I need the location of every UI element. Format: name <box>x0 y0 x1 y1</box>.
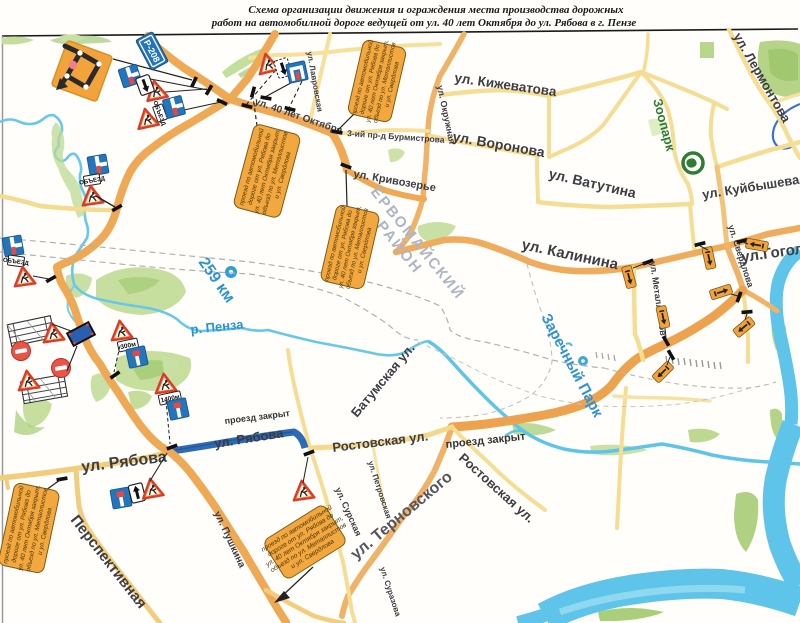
svg-text:работ на автомобилной дороге: работ на автомобилной дороге ведущей от … <box>211 17 637 29</box>
svg-text:Схема организации движения и о: Схема организации движения и ограждения … <box>248 4 624 16</box>
